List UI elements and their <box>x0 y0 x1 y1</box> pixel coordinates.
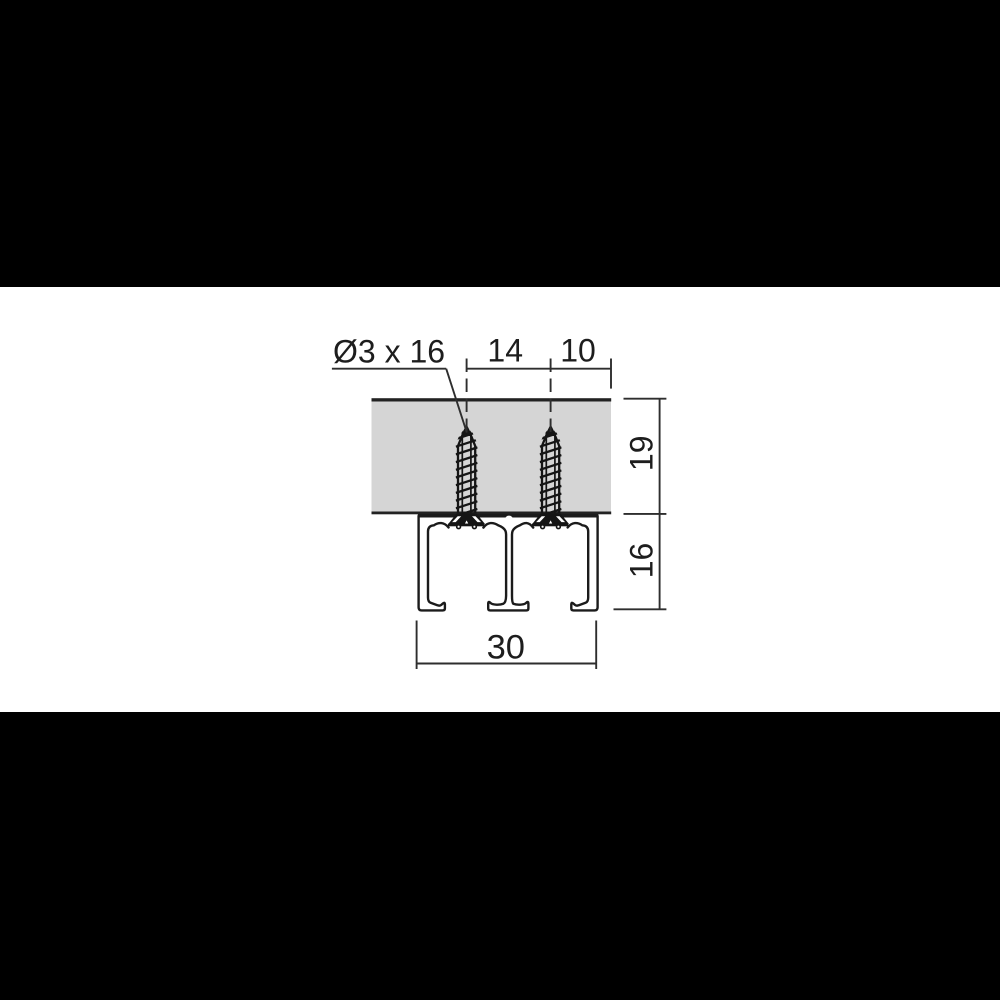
svg-text:14: 14 <box>487 332 523 368</box>
svg-text:16: 16 <box>623 543 659 579</box>
svg-text:10: 10 <box>560 332 596 368</box>
svg-text:19: 19 <box>623 436 659 472</box>
svg-text:30: 30 <box>487 628 525 666</box>
svg-text:Ø3 x 16: Ø3 x 16 <box>333 333 445 369</box>
